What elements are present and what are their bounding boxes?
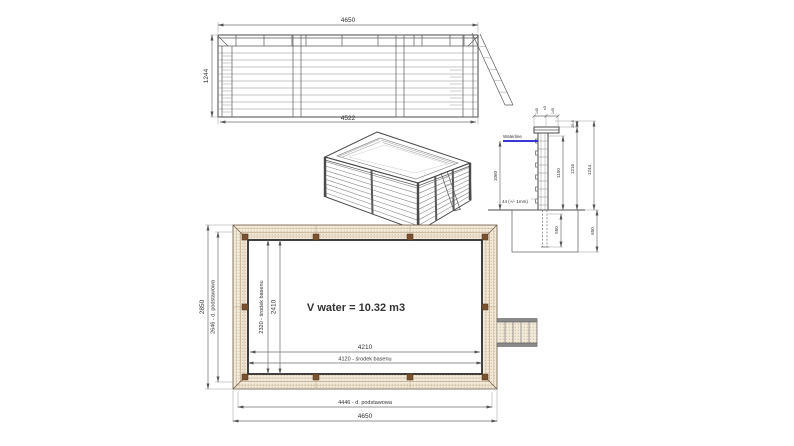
plan-view: 2850 2646 - d. podstawowa 2320 - środek … xyxy=(193,206,553,446)
front-dim-bottom: 4522 xyxy=(341,115,356,122)
dim-length-total: 4650 xyxy=(358,413,373,420)
dim-width-center: 2320 - środek basenu xyxy=(259,280,265,333)
front-dimensions: 4650 1244 4522 xyxy=(203,17,478,124)
iso-ladder xyxy=(441,171,461,211)
dim-width-total: 2850 xyxy=(199,299,206,314)
dim-length-base: 4446 - d. podstawowa xyxy=(338,400,393,406)
dim-height-to-cap: 1216 xyxy=(570,163,575,174)
plan-ladder xyxy=(497,319,537,347)
dim-width-base: 2646 - d. podstawowa xyxy=(211,279,217,334)
volume-note: V water = 10.32 m3 xyxy=(307,302,405,314)
front-elevation-view: 4650 1244 4522 xyxy=(190,5,530,132)
cap-dim-left: 145 xyxy=(535,108,539,114)
cap-dim-right: 145 xyxy=(551,108,555,114)
dim-cap-offset: 28.6 xyxy=(571,120,575,127)
section-waterline: Waterline xyxy=(503,134,538,141)
dim-total-height: 1244 xyxy=(587,164,592,175)
dim-length-center: 4120 - środek basenu xyxy=(338,357,391,363)
front-pool-body xyxy=(218,35,478,117)
plank-thickness-note: 44 (+/- 1mm) xyxy=(502,199,528,204)
dim-width-inner: 2410 xyxy=(271,299,278,314)
dim-wall-height: 1150 xyxy=(556,168,561,178)
front-inner-ladder xyxy=(222,46,232,117)
dim-foundation-depth: 650 xyxy=(590,227,595,235)
waterline-label: Waterline xyxy=(503,134,522,139)
technical-drawing-canvas: 4650 1244 4522 xyxy=(0,0,794,446)
front-dim-left: 1244 xyxy=(203,68,210,83)
cap-dim-tol: ±5 xyxy=(543,106,547,110)
dim-length-inner: 4210 xyxy=(358,344,373,351)
front-dim-top: 4650 xyxy=(341,17,356,24)
dim-post-embed: 550 xyxy=(554,226,559,234)
dim-water-depth: 1060 xyxy=(493,170,498,181)
